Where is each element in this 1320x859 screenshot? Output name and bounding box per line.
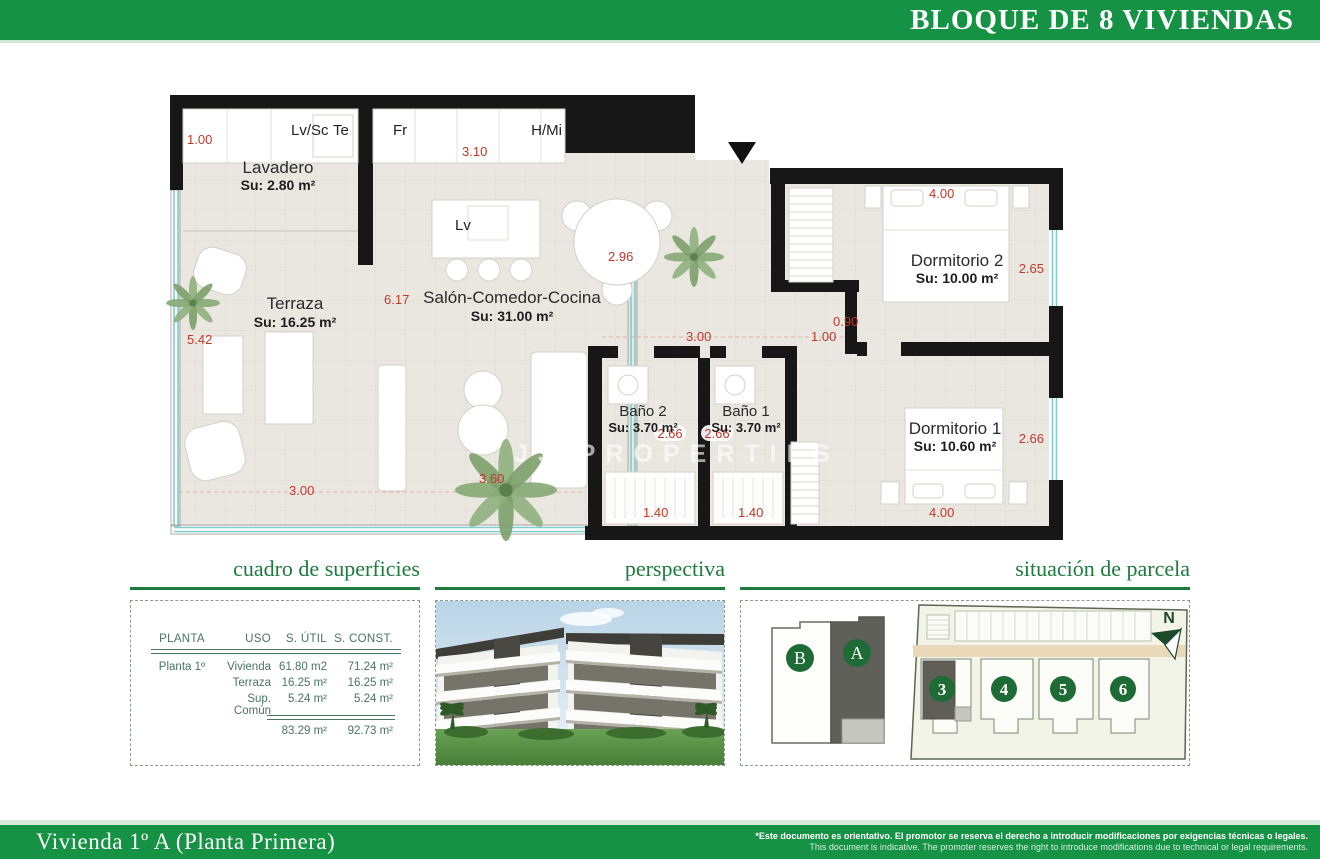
unit-title: Vivienda 1º A (Planta Primera) bbox=[36, 829, 335, 855]
cell: 16.25 m² bbox=[327, 677, 393, 689]
table-row: Sup. Común 5.24 m² 5.24 m² bbox=[131, 693, 419, 707]
dim-terraza-alto: 5.42 bbox=[187, 332, 212, 347]
site-plan-drawing: B A bbox=[741, 601, 1189, 765]
room-banyo1: Baño 1 bbox=[722, 403, 770, 420]
dim-terraza-ancho: 3.00 bbox=[289, 483, 314, 498]
total-sutil: 83.29 m² bbox=[271, 725, 327, 737]
table-row: Planta 1º Vivienda 61.80 m2 71.24 m² bbox=[131, 661, 419, 675]
cell: Sup. Común bbox=[213, 693, 271, 717]
watermark: JJ PROPERTIES bbox=[514, 440, 840, 468]
header-rule bbox=[151, 649, 401, 654]
dim-salon-alto: 6.17 bbox=[384, 292, 409, 307]
room-banyo2: Baño 2 bbox=[619, 403, 667, 420]
parcela-title: situación de parcela bbox=[1015, 556, 1190, 587]
cell: Vivienda bbox=[213, 661, 271, 673]
room-dorm2-area: Su: 10.00 m² bbox=[916, 270, 999, 286]
dim-banyo1-ancho: 1.40 bbox=[738, 505, 763, 520]
disclaimer: *Este documento es orientativo. El promo… bbox=[755, 831, 1308, 853]
top-banner: BLOQUE DE 8 VIVIENDAS bbox=[0, 0, 1320, 43]
room-banyo2-area: Su: 3.70 m² bbox=[608, 420, 678, 435]
dim-cocina: 3.10 bbox=[462, 144, 487, 159]
superficies-title: cuadro de superficies bbox=[233, 556, 420, 587]
floor-plan: 1.00 3.10 2.96 6.17 5.42 3.00 3.60 3.00 … bbox=[165, 90, 1080, 545]
col-sutil: S. ÚTIL bbox=[271, 633, 327, 645]
cell: 16.25 m² bbox=[271, 677, 327, 689]
total-sconst: 92.73 m² bbox=[327, 725, 393, 737]
plot-4-label: 4 bbox=[1000, 680, 1009, 699]
room-terraza-area: Su: 16.25 m² bbox=[254, 314, 337, 330]
cell: Planta 1º bbox=[151, 661, 213, 673]
north-label: N bbox=[1163, 610, 1175, 627]
cell: 5.24 m² bbox=[327, 693, 393, 705]
unit-diagram: B A bbox=[772, 617, 884, 743]
cell: Terraza bbox=[213, 677, 271, 689]
bottom-banner: Vivienda 1º A (Planta Primera) *Este doc… bbox=[0, 825, 1320, 859]
label-fr: Fr bbox=[393, 122, 407, 139]
room-banyo1-area: Su: 3.70 m² bbox=[711, 420, 781, 435]
dim-dorm2-alto: 2.65 bbox=[1019, 261, 1044, 276]
col-uso: USO bbox=[213, 633, 271, 645]
room-lavadero-area: Su: 2.80 m² bbox=[241, 177, 316, 193]
dim-salon-ancho: 3.60 bbox=[479, 471, 504, 486]
plant-icon bbox=[664, 227, 724, 287]
page: BLOQUE DE 8 VIVIENDAS bbox=[0, 0, 1320, 859]
table-header-row: PLANTA USO S. ÚTIL S. CONST. bbox=[131, 633, 419, 647]
dim-lavadero: 1.00 bbox=[187, 132, 212, 147]
room-salon-area: Su: 31.00 m² bbox=[471, 308, 554, 324]
label-lv: Lv bbox=[455, 217, 471, 234]
room-lavadero: Lavadero bbox=[243, 158, 314, 177]
cell: 5.24 m² bbox=[271, 693, 327, 705]
section-title-superficies: cuadro de superficies bbox=[130, 554, 420, 590]
col-planta: PLANTA bbox=[151, 633, 213, 645]
perspective-render bbox=[435, 600, 725, 766]
cell: 61.80 m2 bbox=[271, 661, 327, 673]
plant-icon bbox=[166, 276, 220, 330]
dim-hall: 3.00 bbox=[686, 329, 711, 344]
col-sconst: S. CONST. bbox=[327, 633, 393, 645]
table-row: Terraza 16.25 m² 16.25 m² bbox=[131, 677, 419, 691]
plot-6-label: 6 bbox=[1119, 680, 1128, 699]
section-title-perspectiva: perspectiva bbox=[435, 554, 725, 590]
wardrobe-hall bbox=[789, 188, 833, 282]
dim-dorm1-alto: 2.66 bbox=[1019, 431, 1044, 446]
room-terraza: Terraza bbox=[267, 294, 324, 313]
section-title-parcela: situación de parcela bbox=[740, 554, 1190, 590]
document-title: BLOQUE DE 8 VIVIENDAS bbox=[910, 4, 1294, 37]
kitchen-island bbox=[432, 200, 540, 281]
dim-banyo2-ancho: 1.40 bbox=[643, 505, 668, 520]
cell: 71.24 m² bbox=[327, 661, 393, 673]
surface-table: PLANTA USO S. ÚTIL S. CONST. Planta 1º V… bbox=[130, 600, 420, 766]
dim-mesa: 2.96 bbox=[608, 249, 633, 264]
disclaimer-en: This document is indicative. The promote… bbox=[755, 842, 1308, 853]
dim-hall-3: 0.90 bbox=[833, 314, 858, 329]
label-te: Te bbox=[333, 122, 349, 139]
label-hmi: H/Mi bbox=[531, 122, 562, 139]
disclaimer-es: *Este documento es orientativo. El promo… bbox=[755, 831, 1308, 842]
site-plan: B A bbox=[740, 600, 1190, 766]
totals-rule bbox=[267, 715, 395, 720]
room-dorm1-area: Su: 10.60 m² bbox=[914, 438, 997, 454]
room-dorm2: Dormitorio 2 bbox=[911, 251, 1004, 270]
table-totals-row: 83.29 m² 92.73 m² bbox=[131, 725, 419, 739]
label-lvsc: Lv/Sc bbox=[291, 122, 329, 139]
plot-3-label: 3 bbox=[938, 680, 947, 699]
unit-a-label: A bbox=[851, 643, 864, 663]
plot-5-label: 5 bbox=[1059, 680, 1068, 699]
room-dorm1: Dormitorio 1 bbox=[909, 419, 1002, 438]
dim-hall-2: 1.00 bbox=[811, 329, 836, 344]
perspectiva-title: perspectiva bbox=[625, 556, 725, 587]
dim-dorm1-ancho: 4.00 bbox=[929, 505, 954, 520]
parcel-map: 3 4 5 6 bbox=[911, 605, 1187, 759]
building-render bbox=[436, 601, 724, 765]
dim-dorm2-ancho: 4.00 bbox=[929, 186, 954, 201]
unit-b-label: B bbox=[794, 648, 806, 668]
room-salon: Salón-Comedor-Cocina bbox=[423, 288, 601, 307]
